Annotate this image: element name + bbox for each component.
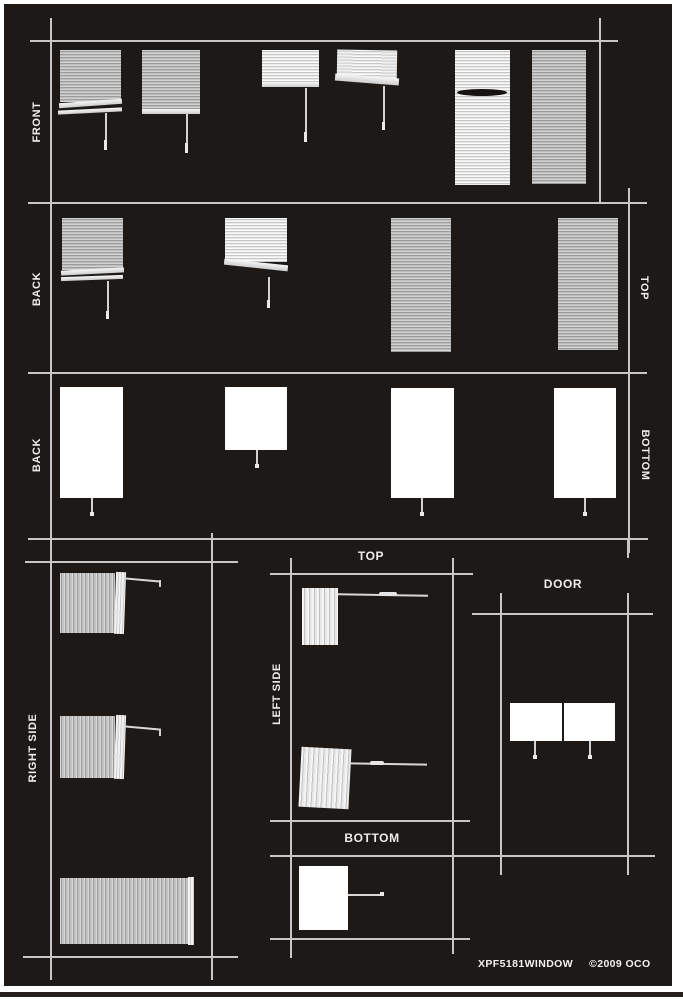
blind-front-1-cord (105, 113, 107, 143)
grid-line (28, 202, 647, 204)
grid-line (599, 18, 601, 203)
blind-front-4-cord (383, 86, 385, 126)
label-bottom-middle: BOTTOM (344, 831, 399, 845)
door-panel-2-knob (588, 755, 592, 759)
blind-front-2-cord (186, 114, 188, 146)
shade-panel-back-2 (225, 387, 287, 450)
shade-panel-bottom-1-cord (421, 498, 423, 512)
grid-line (28, 372, 647, 374)
blind-front-5-notch (457, 89, 507, 96)
blind-front-3 (262, 50, 319, 83)
shade-panel-bottom-2-cord (584, 498, 586, 512)
grid-line (50, 18, 52, 980)
blind-front-2 (142, 50, 200, 110)
shade-panel-back-2-cord (256, 450, 258, 464)
blind-right-side-1 (60, 573, 115, 633)
shade-panel-bottom-middle-cord (348, 894, 380, 896)
blind-back-2-cord-tip (267, 300, 270, 308)
shade-panel-back-1-knob (90, 512, 94, 516)
grid-line (270, 855, 655, 857)
shade-panel-bottom-2 (554, 388, 616, 498)
grid-line (23, 956, 238, 958)
grid-line (28, 538, 648, 540)
blind-front-3-cord-tip (304, 132, 307, 142)
blind-front-4-cord-tip (382, 122, 385, 130)
blind-left-side-1-wand-grip (379, 592, 397, 596)
blind-top-1 (391, 218, 451, 352)
blind-front-3-rail (262, 82, 319, 87)
label-top-middle: TOP (358, 549, 384, 563)
shade-panel-bottom-1 (391, 388, 454, 498)
shade-panel-back-2-knob (255, 464, 259, 468)
blind-front-2-rail (142, 109, 200, 114)
blind-right-side-2-wand-tip (159, 729, 161, 736)
door-panel-1-cord (534, 741, 536, 756)
shade-panel-back-1-cord (91, 498, 93, 512)
blind-right-side-1-wand-tip (159, 580, 161, 587)
door-panel-2-cord (589, 741, 591, 756)
label-back-row3: BACK (31, 438, 43, 472)
grid-line (500, 593, 502, 875)
blind-back-2 (225, 218, 287, 262)
blind-front-5 (455, 50, 510, 185)
grid-line (628, 188, 630, 553)
shade-panel-bottom-middle-knob (380, 892, 384, 896)
blind-front-1-cord-tip (104, 140, 107, 150)
blind-back-1 (62, 218, 123, 270)
blind-front-2-cord-tip (185, 143, 188, 153)
label-front: FRONT (31, 102, 43, 143)
grid-line (30, 40, 618, 42)
blind-front-3-cord (305, 88, 307, 136)
grid-line (270, 573, 473, 575)
blind-back-1-cord-tip (106, 311, 109, 319)
blind-left-side-1 (302, 588, 338, 645)
blind-top-2 (558, 218, 618, 350)
page-edge-line (0, 992, 683, 997)
grid-line (270, 938, 470, 940)
blind-left-side-2 (298, 747, 351, 810)
label-bottom-right: BOTTOM (639, 429, 651, 480)
grid-line (627, 593, 629, 875)
grid-line (627, 540, 629, 558)
door-panel-2 (564, 703, 615, 741)
grid-line (452, 558, 454, 954)
grid-line (25, 561, 238, 563)
door-panel-1-knob (533, 755, 537, 759)
copyright: ©2009 OCO (589, 958, 651, 970)
blind-front-1 (60, 50, 121, 102)
shade-panel-back-1 (60, 387, 123, 498)
blind-front-6 (532, 50, 586, 184)
grid-line (211, 533, 213, 980)
blind-right-side-3-stack (188, 877, 194, 945)
door-panel-1 (510, 703, 562, 741)
grid-line (290, 558, 292, 958)
blind-left-side-2-wand-grip (370, 761, 384, 765)
shade-panel-bottom-2-knob (583, 512, 587, 516)
label-right-side: RIGHT SIDE (27, 714, 39, 783)
label-left-side: LEFT SIDE (271, 663, 283, 725)
part-number: XPF5181WINDOW (478, 958, 573, 970)
blind-right-side-2 (60, 716, 115, 778)
blind-right-side-3 (60, 878, 188, 944)
label-top-right: TOP (638, 276, 650, 300)
label-door: DOOR (544, 577, 582, 591)
footer: XPF5181WINDOW ©2009 OCO (478, 958, 651, 970)
grid-line (270, 820, 470, 822)
pattern-sheet-page: FRONT BACK BACK RIGHT SIDE LEFT SIDE TOP… (0, 0, 683, 1001)
label-back-row2: BACK (31, 272, 43, 306)
shade-panel-bottom-1-knob (420, 512, 424, 516)
shade-panel-bottom-middle (299, 866, 348, 930)
blind-back-1-cord (107, 281, 109, 315)
